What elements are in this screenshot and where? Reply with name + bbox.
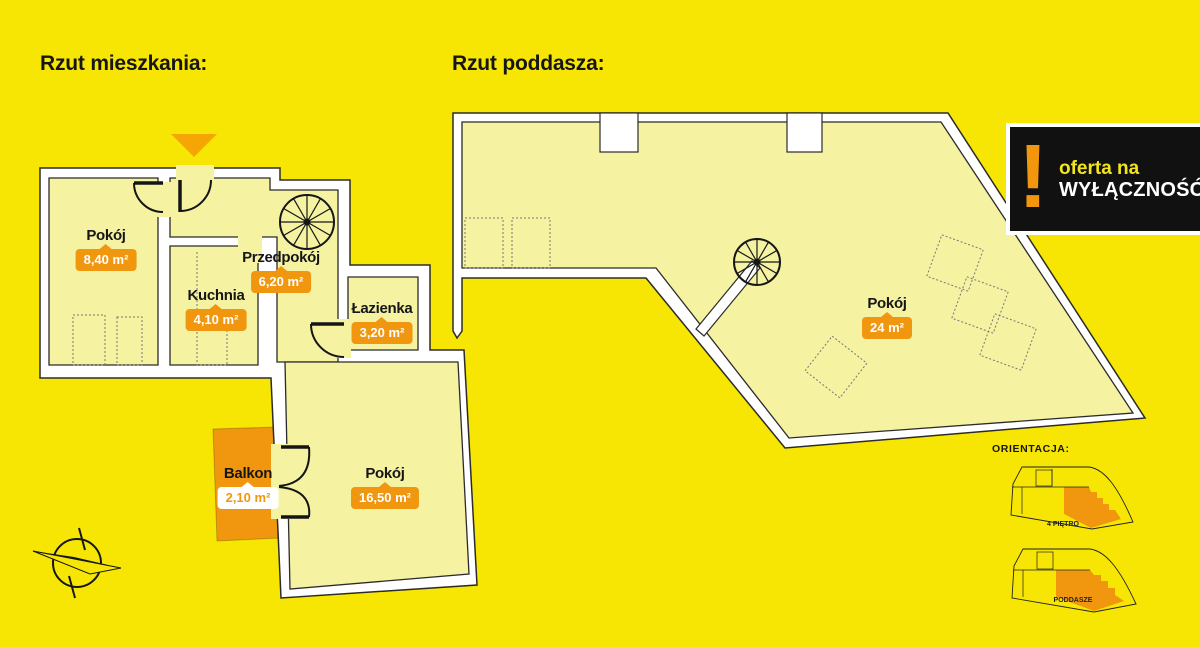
entrance-arrow-icon	[171, 134, 217, 157]
offer-line1: oferta na	[1059, 158, 1200, 180]
room-area: 24 m²	[870, 320, 904, 335]
floorplan-drawing	[0, 0, 1200, 647]
exclusive-offer-badge: ! oferta na WYŁĄCZNOŚĆ	[1006, 123, 1200, 235]
attic-plan-title: Rzut poddasza:	[452, 52, 604, 76]
room-area: 8,40 m²	[84, 252, 129, 267]
offer-text: oferta na WYŁĄCZNOŚĆ	[1059, 158, 1200, 203]
badge-tail	[379, 482, 391, 487]
badge-tail	[100, 244, 112, 249]
room-name: Kuchnia	[186, 288, 247, 304]
room-area: 4,10 m²	[194, 312, 239, 327]
apartment-floorplan	[40, 134, 477, 598]
spiral-staircase-icon	[734, 239, 780, 285]
room-name: Pokój	[351, 466, 419, 482]
orientation-heading: ORIENTACJA:	[992, 443, 1070, 455]
orientation-map-4pietro	[1011, 467, 1133, 529]
room-area: 6,20 m²	[259, 274, 304, 289]
compass-icon	[33, 528, 121, 598]
floorplan-image: Rzut mieszkania: Rzut poddasza: Pokój 8,…	[0, 0, 1200, 647]
badge-tail	[881, 312, 893, 317]
room-label-kuchnia: Kuchnia 4,10 m²	[186, 288, 247, 331]
highlight-unit	[1056, 570, 1124, 611]
room-area-badge: 4,10 m²	[186, 309, 247, 331]
room-label-pokoj-24: Pokój 24 m²	[862, 296, 912, 339]
spiral-staircase-icon	[280, 195, 334, 249]
roof-notch	[787, 113, 822, 152]
room-name: Pokój	[76, 228, 137, 244]
entry-door-opening	[176, 165, 214, 182]
room-area-badge: 3,20 m²	[352, 322, 413, 344]
badge-tail	[242, 482, 254, 487]
exclamation-icon: !	[1018, 142, 1048, 212]
badge-tail	[210, 304, 222, 309]
room-area: 3,20 m²	[360, 325, 405, 340]
badge-tail	[376, 317, 388, 322]
room-name: Pokój	[862, 296, 912, 312]
room-area: 2,10 m²	[226, 490, 271, 505]
room-label-lazienka: Łazienka 3,20 m²	[352, 301, 413, 344]
room-name: Balkon	[218, 466, 279, 482]
room-label-balkon: Balkon 2,10 m²	[218, 466, 279, 509]
room-area-badge: 2,10 m²	[218, 487, 279, 509]
room-name: Przedpokój	[242, 250, 320, 266]
badge-tail	[275, 266, 287, 271]
room-area: 16,50 m²	[359, 490, 411, 505]
roof-notch	[600, 113, 638, 152]
offer-line2: WYŁĄCZNOŚĆ	[1059, 179, 1200, 202]
orientation-label-poddasze: PODDASZE	[1054, 597, 1093, 604]
room-name: Łazienka	[352, 301, 413, 317]
orientation-label-4pietro: 4 PIĘTRO	[1047, 521, 1079, 528]
room-area-badge: 16,50 m²	[351, 487, 419, 509]
room-label-pokoj-1650: Pokój 16,50 m²	[351, 466, 419, 509]
apartment-plan-title: Rzut mieszkania:	[40, 52, 207, 76]
room-label-pokoj-840: Pokój 8,40 m²	[76, 228, 137, 271]
room-area-badge: 6,20 m²	[251, 271, 312, 293]
room-area-badge: 24 m²	[862, 317, 912, 339]
room-label-przedpokoj: Przedpokój 6,20 m²	[242, 250, 320, 293]
room-area-badge: 8,40 m²	[76, 249, 137, 271]
